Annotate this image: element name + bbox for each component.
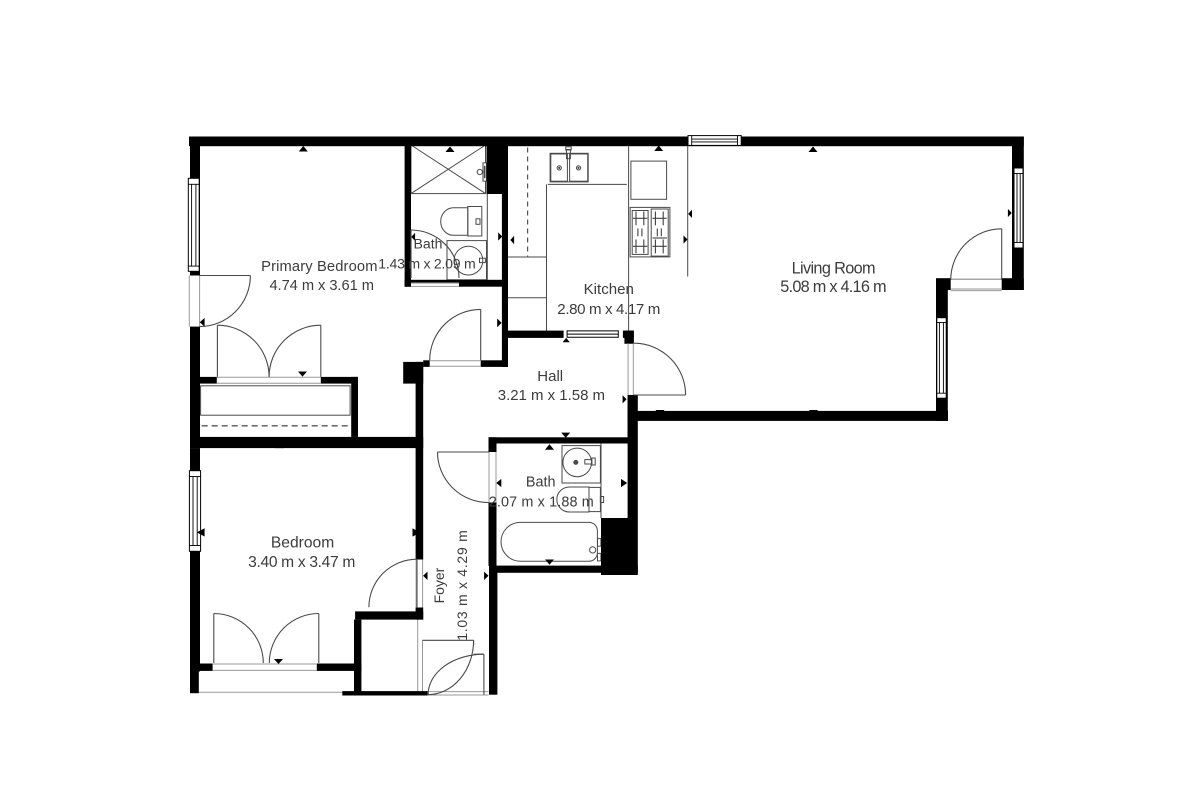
svg-text:1.03 m x 4.29 m: 1.03 m x 4.29 m bbox=[454, 530, 470, 641]
svg-text:Bath: Bath bbox=[414, 235, 443, 251]
svg-text:Living Room: Living Room bbox=[792, 259, 876, 277]
svg-text:4.74 m x 3.61 m: 4.74 m x 3.61 m bbox=[269, 278, 374, 294]
svg-text:3.40 m x 3.47 m: 3.40 m x 3.47 m bbox=[248, 554, 355, 571]
svg-text:Hall: Hall bbox=[537, 368, 563, 385]
svg-text:5.08 m x 4.16 m: 5.08 m x 4.16 m bbox=[780, 278, 886, 296]
svg-text:Bedroom: Bedroom bbox=[271, 535, 334, 552]
svg-text:Bath: Bath bbox=[526, 475, 556, 491]
svg-text:1.43 m x 2.09 m: 1.43 m x 2.09 m bbox=[378, 255, 476, 271]
svg-text:2.80 m x 4.17 m: 2.80 m x 4.17 m bbox=[557, 301, 660, 318]
svg-text:3.21 m x 1.58 m: 3.21 m x 1.58 m bbox=[498, 387, 605, 404]
svg-text:Kitchen: Kitchen bbox=[584, 281, 634, 298]
svg-text:Foyer: Foyer bbox=[431, 567, 447, 603]
svg-text:2.07 m x 1.88 m: 2.07 m x 1.88 m bbox=[489, 495, 594, 511]
svg-text:Primary Bedroom: Primary Bedroom bbox=[261, 259, 377, 275]
